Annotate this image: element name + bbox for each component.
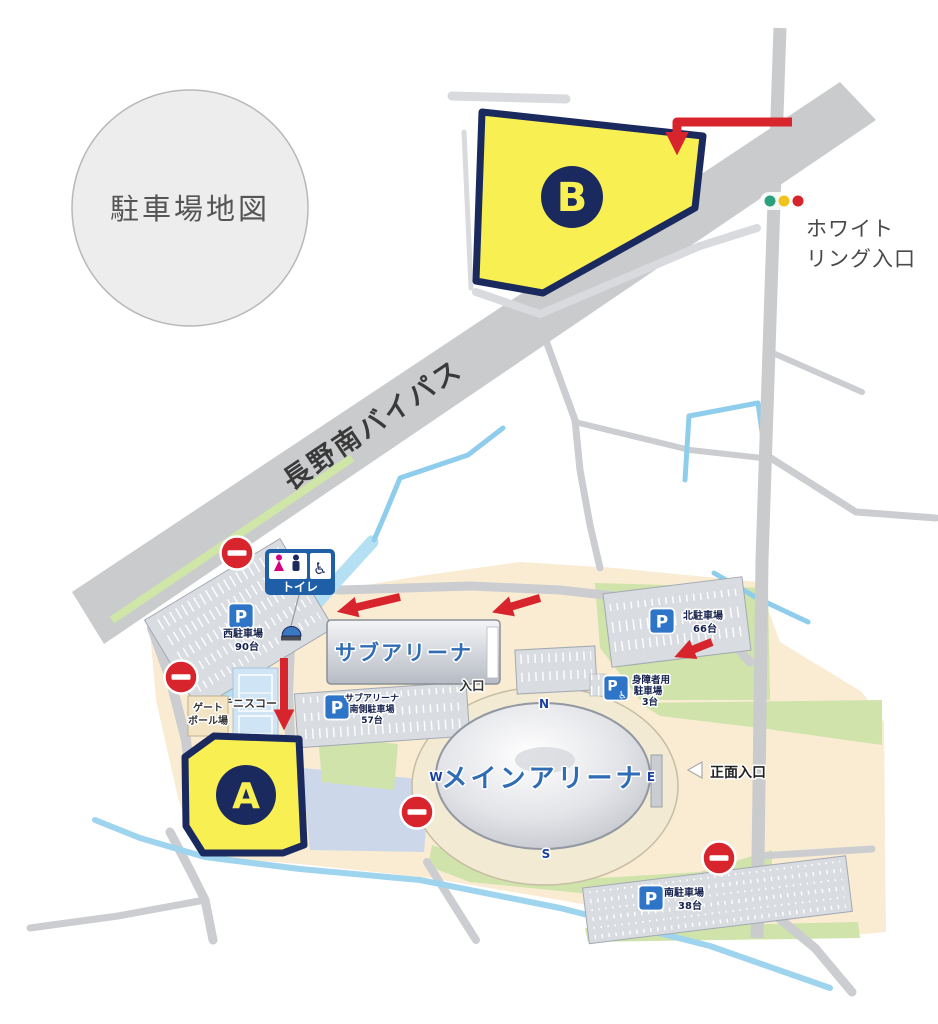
toilet-label: トイレ: [282, 580, 318, 594]
map-svg: P P ♿: [0, 0, 938, 1024]
accessible-parking-line2: 駐車場: [634, 685, 663, 697]
svg-text:E: E: [647, 770, 655, 784]
sub-arena-label: サブアリーナ: [335, 641, 473, 665]
gateball-field: ゲート ボール場: [188, 696, 228, 736]
bypass-label: 長野南バイパス: [278, 354, 469, 497]
wheelchair-icon: ♿: [313, 559, 327, 578]
west-parking-name: 西駐車場: [223, 627, 263, 640]
sub-south-parking-capacity: 57台: [361, 714, 383, 726]
accessible-parking-capacity: 3台: [642, 696, 659, 708]
map-title-circle: 駐車場地図: [72, 90, 308, 326]
zone-a: A: [185, 736, 304, 853]
accessible-parking-line1: 身障者用: [632, 674, 670, 686]
traffic-light-icon: [760, 192, 806, 210]
svg-text:N: N: [539, 697, 549, 711]
p-icon-accessible: [604, 676, 629, 702]
north-parking-capacity: 66台: [693, 622, 717, 635]
sub-south-parking-line1: サブアリーナ: [345, 692, 399, 704]
p-icon-north: [650, 609, 675, 634]
no-entry-icon: [165, 661, 198, 694]
sub-arena-building: サブアリーナ: [327, 620, 500, 684]
west-parking-capacity: 90台: [235, 640, 259, 653]
south-parking-name: 南駐車場: [664, 886, 704, 899]
sub-south-parking-line2: 南側駐車場: [349, 703, 394, 715]
zone-b-letter: B: [557, 175, 588, 221]
gateball-label-line1: ゲート: [193, 701, 223, 714]
p-icon-south: [639, 886, 664, 911]
sub-arena-entrance-label: 入口: [459, 678, 484, 693]
man-icon: [293, 555, 300, 572]
white-ring-entrance-label: ホワイト リング入口: [806, 217, 916, 271]
map-title: 駐車場地図: [110, 192, 270, 226]
svg-text:S: S: [542, 847, 551, 861]
main-arena-label: メインアリーナ: [441, 764, 644, 794]
north-parking-name: 北駐車場: [683, 609, 723, 622]
no-entry-icon: [703, 842, 736, 875]
parking-map: P P ♿: [0, 0, 938, 1024]
svg-text:リング入口: リング入口: [806, 247, 916, 271]
tennis-court-label: テニスコート: [222, 697, 288, 710]
no-entry-icon: [221, 537, 254, 570]
main-arena-building: メインアリーナ: [436, 703, 650, 849]
svg-text:W: W: [429, 770, 442, 784]
svg-text:ホワイト: ホワイト: [806, 217, 894, 241]
gateball-label-line2: ボール場: [188, 714, 228, 727]
no-entry-icon: [401, 796, 434, 829]
south-parking-capacity: 38台: [678, 899, 702, 912]
zone-a-letter: A: [232, 776, 260, 817]
zone-b: B: [476, 112, 703, 293]
p-icon-west: [229, 604, 254, 629]
east-small-parking-lot: [515, 646, 597, 694]
front-entrance-label: 正面入口: [710, 765, 766, 781]
